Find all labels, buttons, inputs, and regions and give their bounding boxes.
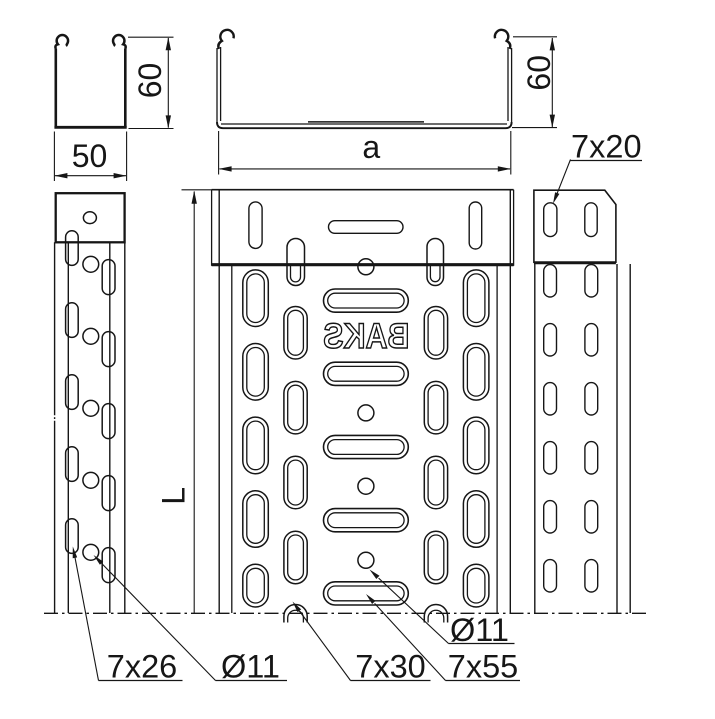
svg-text:Ø11: Ø11	[221, 649, 280, 685]
svg-text:a: a	[362, 129, 380, 165]
svg-text:7x55: 7x55	[448, 649, 518, 685]
svg-text:50: 50	[72, 138, 108, 174]
svg-text:7x26: 7x26	[107, 649, 177, 685]
svg-text:L: L	[156, 487, 192, 505]
svg-text:7x20: 7x20	[571, 129, 641, 165]
svg-text:BAKS: BAKS	[323, 316, 409, 355]
svg-text:60: 60	[521, 55, 557, 91]
svg-text:Ø11: Ø11	[450, 612, 509, 648]
svg-text:60: 60	[132, 63, 168, 99]
svg-text:7x30: 7x30	[355, 649, 425, 685]
